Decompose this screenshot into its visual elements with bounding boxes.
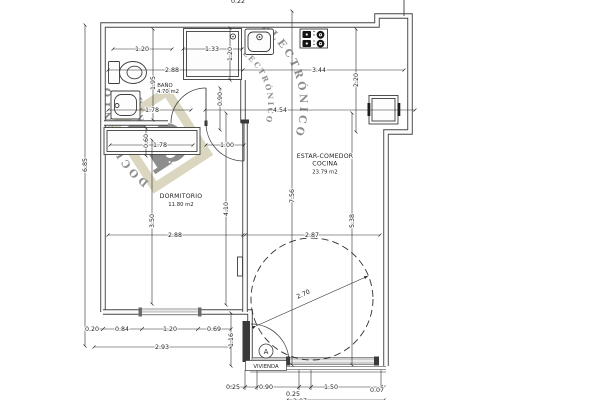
dim-4-54: 4.54 [273, 107, 287, 114]
room-area-bano: 4.70 m2 [157, 89, 179, 95]
dim-2-20: 2.20 [353, 73, 360, 87]
dim-4-10: 4.10 [223, 202, 230, 216]
dim-2-87: 2.87 [305, 232, 319, 239]
dim-2-88-dorm: 2.88 [168, 232, 182, 239]
bedroom-window [139, 308, 202, 317]
floor-plan-drawing: b DOCUMENTO ELECTRÓNICO DOCUMENTO ELECTR… [0, 0, 600, 400]
entrance-label-text: VIVIENDA [253, 364, 279, 370]
dim-5-38: 5.38 [349, 214, 356, 228]
room-area-estar: 23.79 m2 [312, 170, 337, 176]
wall-pilaster [238, 257, 243, 276]
dim-2-93: 2.93 [155, 344, 169, 351]
dim-0-69: 0.69 [207, 326, 221, 333]
dim-1-50: 1.50 [324, 384, 338, 391]
dim-3-44: 3.44 [312, 67, 326, 74]
stove-icon [300, 29, 328, 48]
dim-1-00: 1.00 [220, 142, 234, 149]
kitchen-sink-icon [245, 29, 274, 55]
dim-1-78-bath: 1.78 [145, 107, 159, 114]
dim-1-78-closet: 1.78 [153, 142, 167, 149]
dim-0-25-a: 0.25 [226, 384, 240, 391]
dim-1-95: 1.95 [150, 76, 157, 90]
dim-0-20: 0.20 [85, 326, 99, 333]
entry-jamb [243, 321, 251, 362]
dim-0-90-door: 0.90 [259, 384, 273, 391]
room-name-dormitorio: DORMITORIO [160, 193, 203, 200]
dim-0-60: 0.60 [143, 134, 150, 148]
room-area-dormitorio: 11.80 m2 [168, 202, 193, 208]
dim-0-84: 0.84 [115, 326, 129, 333]
dim-0-90-hall: 0.90 [217, 92, 224, 106]
entrance-badge: A [264, 348, 269, 356]
dim-3-50: 3.50 [149, 214, 156, 228]
floor-plan-canvas: b DOCUMENTO ELECTRÓNICO DOCUMENTO ELECTR… [0, 0, 600, 400]
dim-1-20-top: 1.20 [135, 46, 149, 53]
paper-background [0, 0, 600, 400]
room-name-cocina: COCINA [312, 161, 338, 168]
room-name-estar: ESTAR-COMEDOR [297, 153, 354, 160]
dim-0-25-b: 0.25 [286, 391, 300, 398]
dim-top-cut: 0.22 [231, 0, 245, 5]
dim-6-85: 6.85 [82, 158, 89, 172]
dim-1-16: 1.16 [228, 333, 235, 347]
dim-1-20-window: 1.20 [163, 326, 177, 333]
dim-2-88-bath: 2.88 [165, 67, 179, 74]
washbasin-icon [111, 91, 140, 119]
dim-1-20-shower: 1.20 [227, 47, 234, 61]
room-name-bano: BAÑO [157, 82, 172, 89]
dim-0-07: 0.07 [370, 387, 384, 394]
toilet-icon [109, 62, 147, 84]
wall-stub-cap [241, 120, 249, 124]
dim-1-33: 1.33 [205, 46, 219, 53]
dim-7-56: 7.56 [289, 189, 296, 203]
